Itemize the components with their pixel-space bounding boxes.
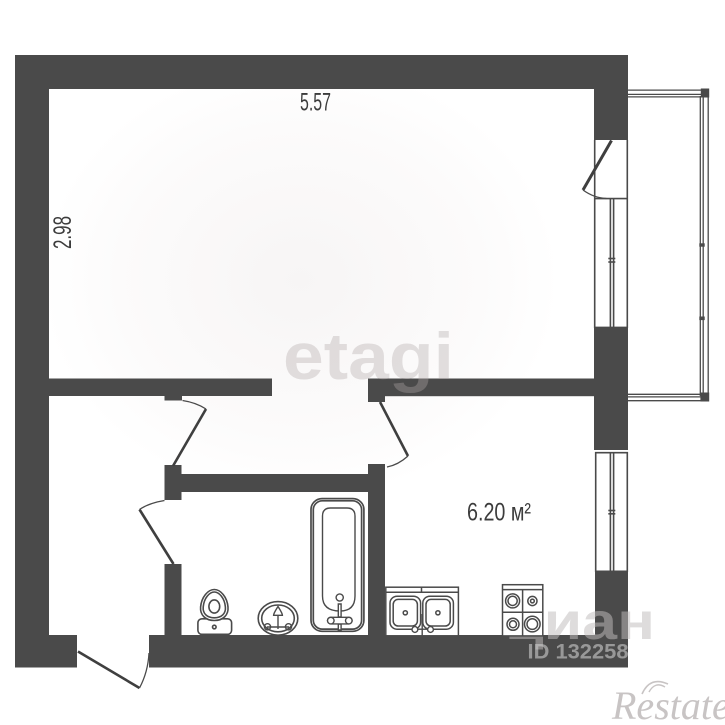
svg-text:ID 132258: ID 132258 — [528, 641, 629, 664]
svg-text:Restate: Restate — [611, 683, 725, 725]
svg-text:etagi: etagi — [283, 319, 454, 393]
svg-text:2.98: 2.98 — [49, 216, 77, 249]
svg-text:6.20 м²: 6.20 м² — [467, 499, 531, 527]
svg-text:5.57: 5.57 — [300, 89, 331, 117]
